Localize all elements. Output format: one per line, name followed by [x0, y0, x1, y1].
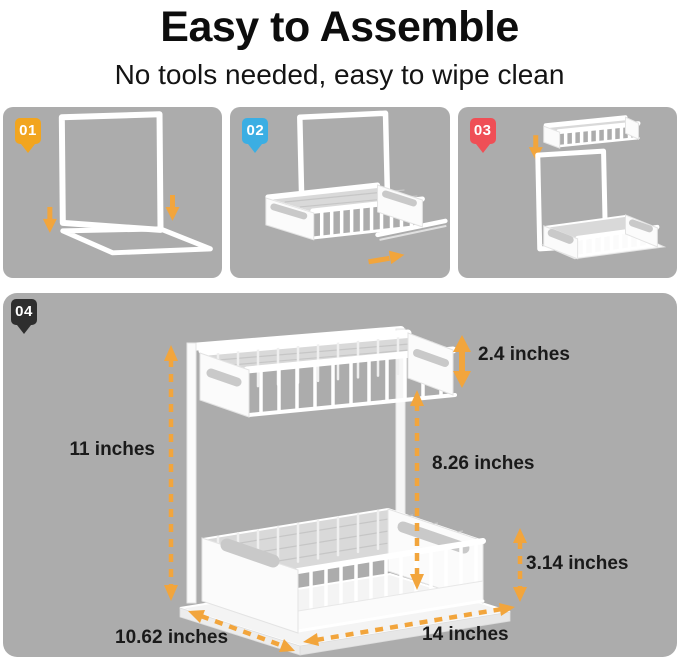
right-arrow-icon — [369, 251, 405, 265]
dim-depth: 10.62 inches — [115, 627, 228, 649]
height-total-arrow-icon — [164, 345, 178, 601]
dim-bottom-basket-height: 3.14 inches — [526, 553, 628, 575]
top-basket-height-arrow-icon — [453, 335, 471, 388]
dim-top-basket-height: 2.4 inches — [478, 344, 570, 366]
assembly-infographic: Easy to Assemble No tools needed, easy t… — [0, 0, 679, 660]
step-panel-1: 01 — [3, 107, 222, 278]
assembled-rack-illustration — [3, 293, 677, 657]
step-panel-3: 03 — [458, 107, 677, 278]
step-4-number: 04 — [11, 299, 37, 325]
page-title: Easy to Assemble — [0, 0, 679, 52]
dim-tier-clearance: 8.26 inches — [432, 453, 534, 475]
down-arrow-icon — [43, 207, 57, 233]
bottom-basket-height-arrow-icon — [513, 528, 527, 602]
top-basket-wireframe — [543, 117, 638, 148]
step-panel-2: 02 — [230, 107, 449, 278]
assembly-steps-row: 01 02 — [3, 107, 677, 278]
dim-total-height: 11 inches — [63, 439, 155, 461]
step-panel-4: 04 — [3, 293, 677, 657]
step-4-badge: 04 — [11, 299, 37, 325]
bottom-basket-wireframe — [542, 215, 664, 259]
step-2-number: 02 — [242, 118, 268, 144]
step-2-badge: 02 — [242, 118, 268, 144]
l-frame-wireframe — [62, 114, 211, 253]
down-arrow-icon — [166, 195, 180, 221]
dim-width: 14 inches — [422, 624, 502, 646]
step-1-number: 01 — [15, 118, 41, 144]
page-subtitle: No tools needed, easy to wipe clean — [0, 59, 679, 91]
step-3-number: 03 — [470, 118, 496, 144]
step-1-badge: 01 — [15, 118, 41, 144]
step-3-badge: 03 — [470, 118, 496, 144]
header: Easy to Assemble No tools needed, easy t… — [0, 0, 679, 91]
